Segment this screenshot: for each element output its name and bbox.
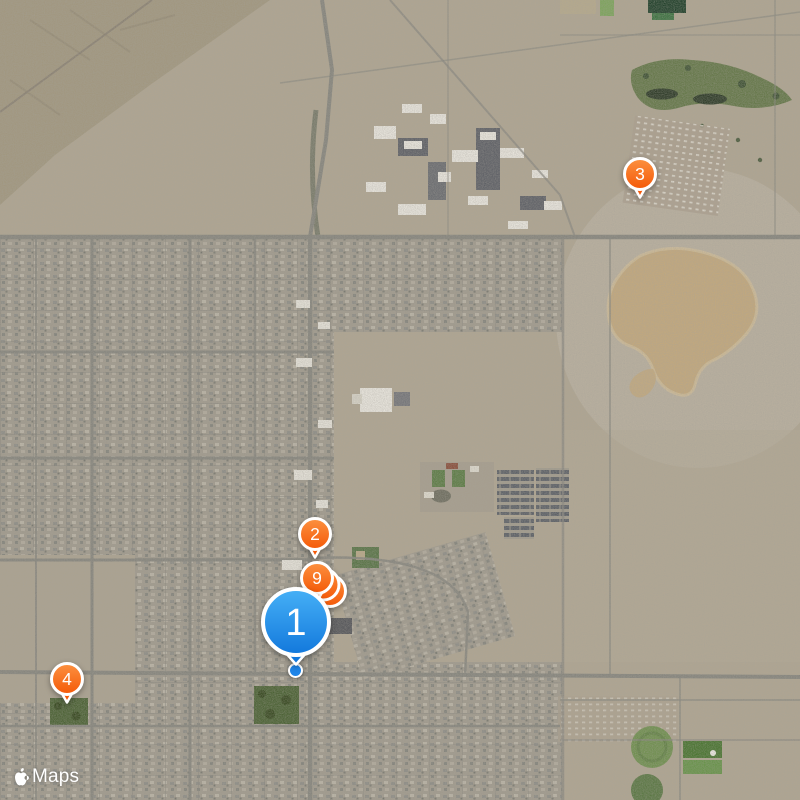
attribution-label: Maps xyxy=(32,766,79,788)
marker-label: 4 xyxy=(62,669,72,689)
marker-label: 2 xyxy=(310,524,320,544)
marker-label: 3 xyxy=(635,164,645,184)
markers-layer: 2 9 3 4 xyxy=(0,0,800,800)
map-marker-4[interactable]: 4 xyxy=(43,658,119,714)
apple-logo-icon xyxy=(13,768,29,787)
map-attribution: Maps xyxy=(13,766,79,788)
map-view[interactable]: 2 9 3 4 xyxy=(0,0,800,800)
map-marker-3[interactable]: 3 xyxy=(616,153,692,209)
map-marker-1[interactable]: 1 xyxy=(251,582,341,674)
marker-label: 1 xyxy=(285,602,306,644)
